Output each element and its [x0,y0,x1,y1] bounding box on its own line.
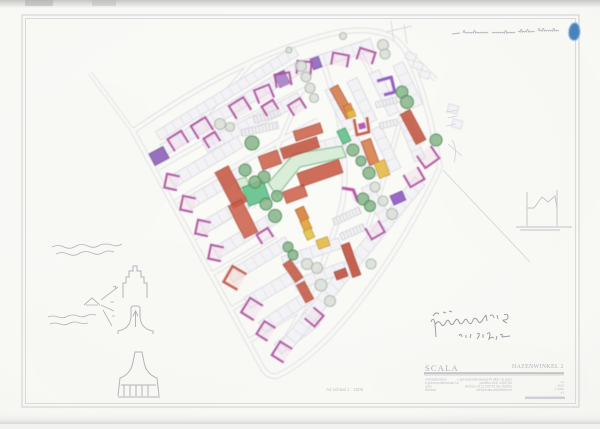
svg-text:info@scala-architekten.nl: info@scala-architekten.nl [476,388,512,392]
svg-text:A3 schaal 1 : 1000: A3 schaal 1 : 1000 [326,387,364,392]
svg-text:zeeland: zeeland [425,388,436,392]
svg-text:a3: a3 [561,391,565,395]
svg-text:HAZENWINKEL 2: HAZENWINKEL 2 [512,364,564,370]
svg-text:SCALA: SCALA [425,363,459,373]
